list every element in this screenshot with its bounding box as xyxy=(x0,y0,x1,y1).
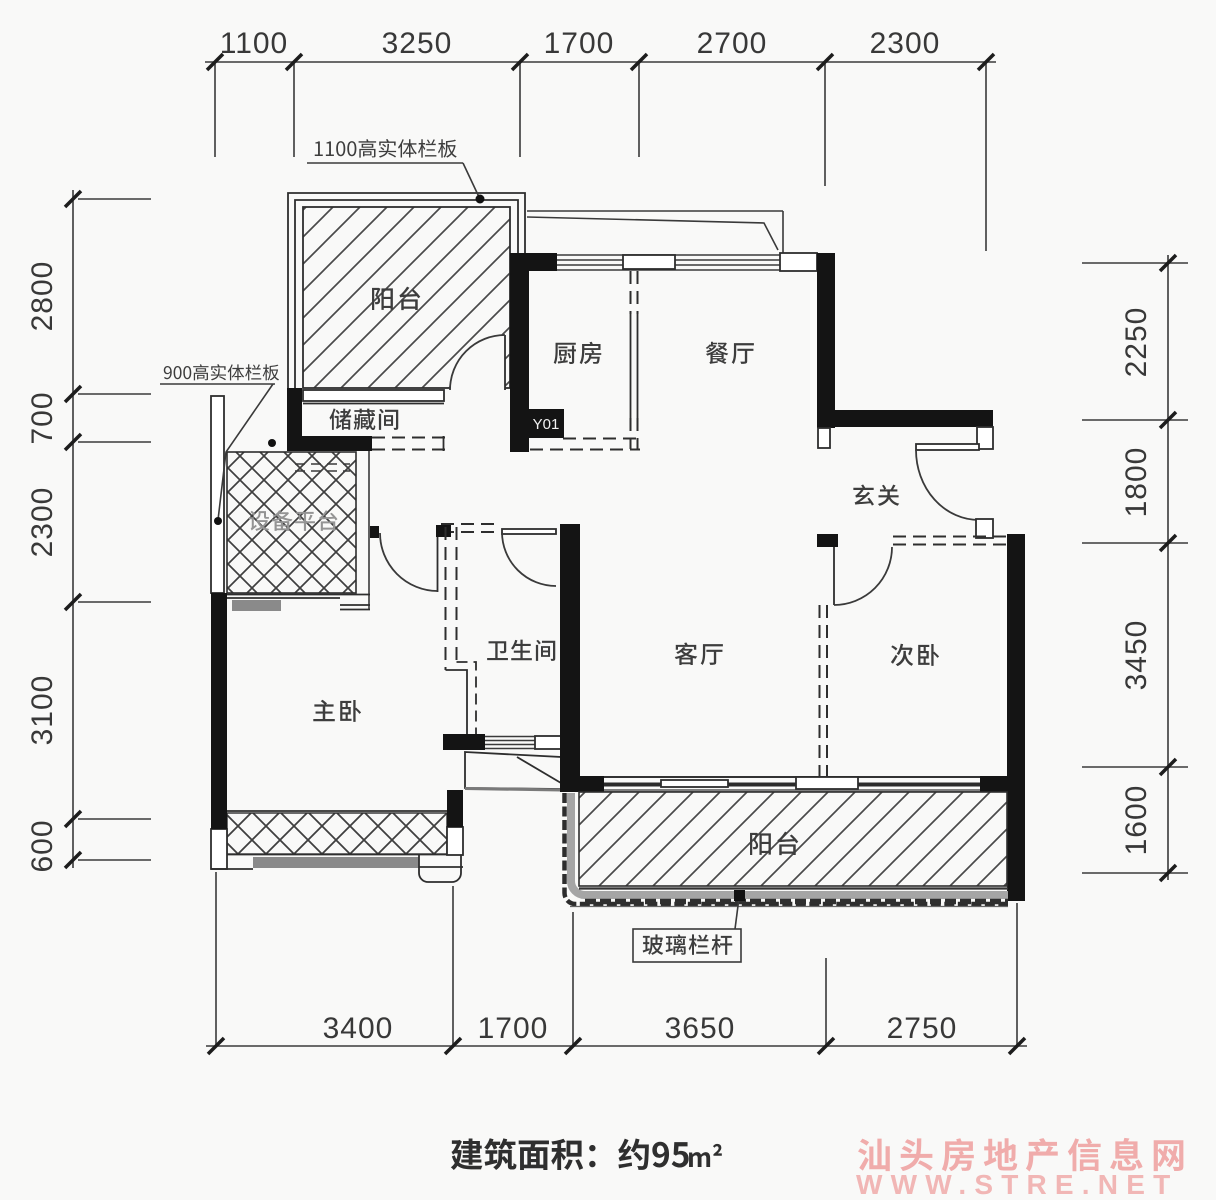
svg-text:2300: 2300 xyxy=(26,487,59,558)
svg-text:2800: 2800 xyxy=(26,261,59,332)
svg-text:3450: 3450 xyxy=(1120,620,1153,691)
svg-text:1100: 1100 xyxy=(220,27,289,60)
svg-text:2300: 2300 xyxy=(870,27,941,60)
svg-text:2750: 2750 xyxy=(887,1012,958,1045)
svg-text:2700: 2700 xyxy=(697,27,768,60)
svg-text:WWW.STRE.NET: WWW.STRE.NET xyxy=(856,1169,1178,1200)
svg-text:700: 700 xyxy=(26,391,59,444)
svg-text:1700: 1700 xyxy=(544,27,615,60)
svg-text:1600: 1600 xyxy=(1120,785,1153,856)
svg-text:Y01: Y01 xyxy=(533,416,560,433)
svg-text:2250: 2250 xyxy=(1120,307,1153,378)
svg-text:3400: 3400 xyxy=(323,1012,394,1045)
svg-text:3650: 3650 xyxy=(665,1012,736,1045)
svg-text:1700: 1700 xyxy=(478,1012,549,1045)
svg-text:3100: 3100 xyxy=(26,675,59,746)
svg-text:1800: 1800 xyxy=(1120,447,1153,518)
svg-text:600: 600 xyxy=(26,819,59,872)
svg-text:3250: 3250 xyxy=(382,27,453,60)
